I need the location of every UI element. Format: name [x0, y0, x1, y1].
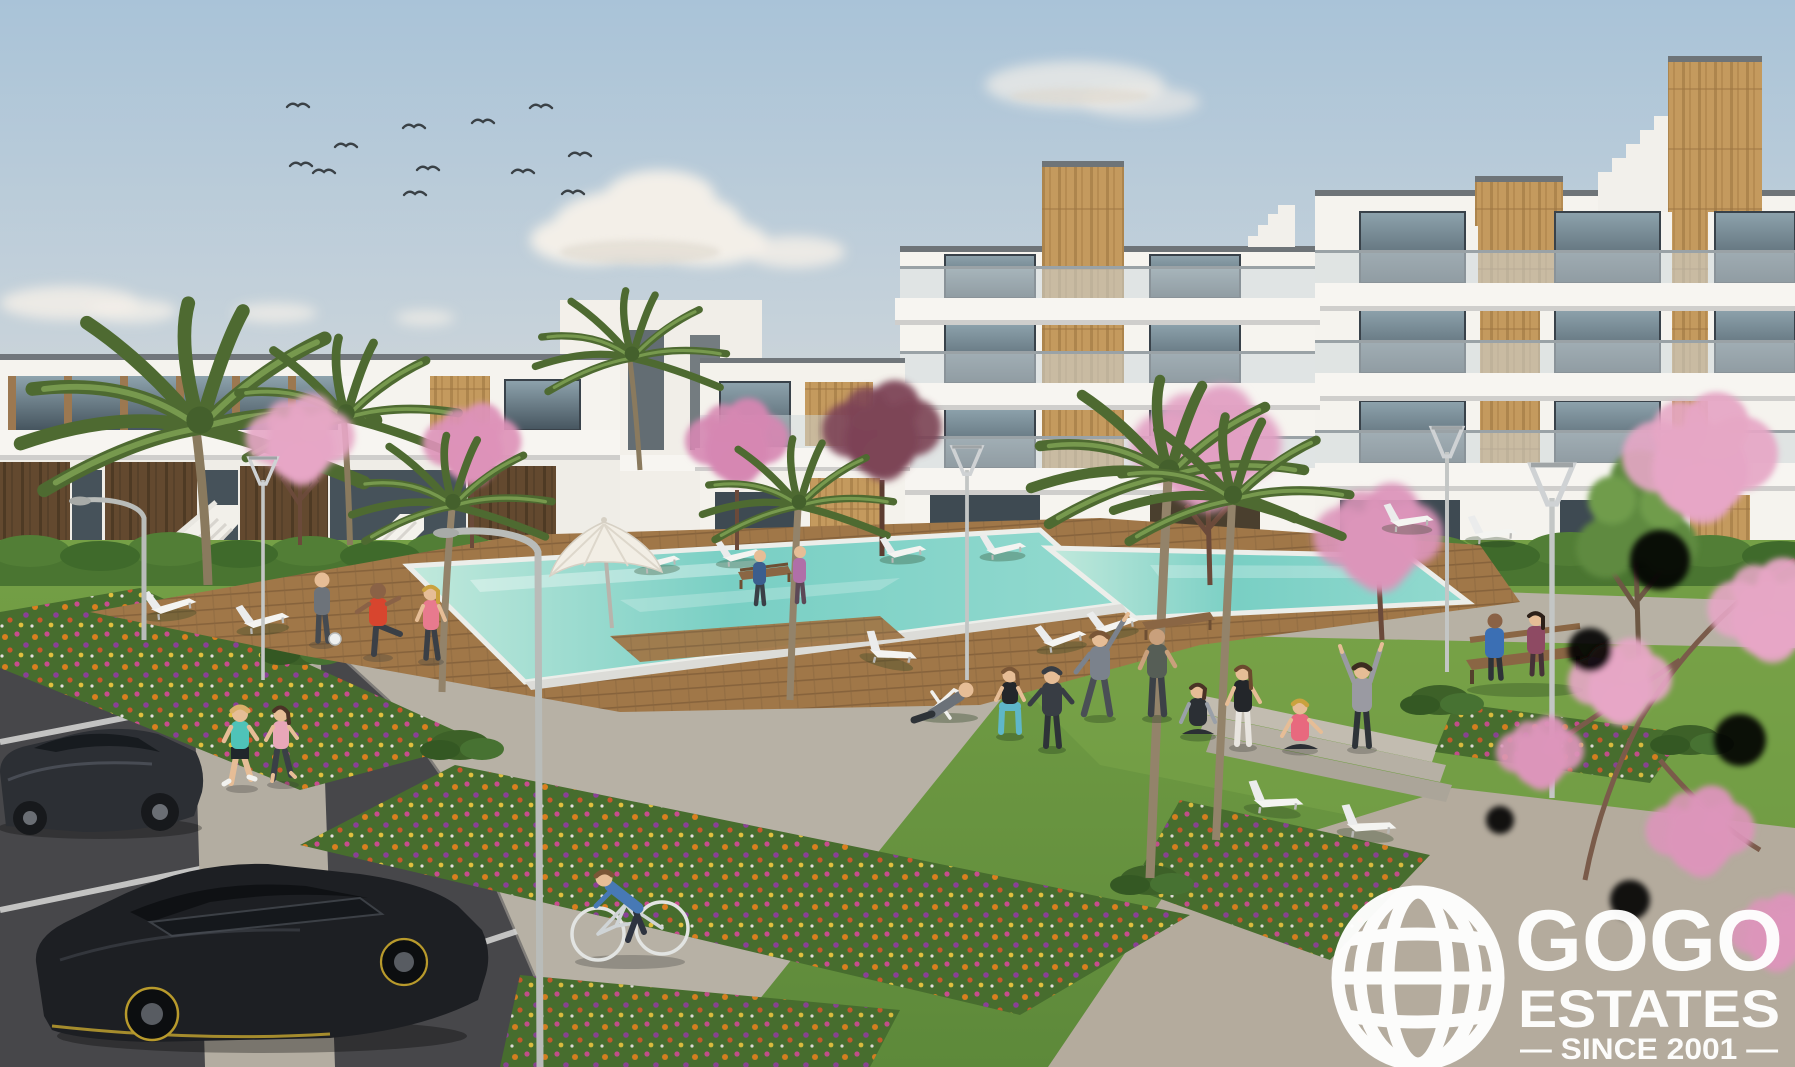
- car-saloon: [0, 729, 203, 839]
- logo-line1: GOGO: [1515, 893, 1783, 989]
- render-canvas: GOGO ESTATES — SINCE 2001 —: [0, 0, 1795, 1067]
- logo-line3: — SINCE 2001 —: [1520, 1033, 1778, 1066]
- logo-line2: ESTATES: [1518, 980, 1780, 1039]
